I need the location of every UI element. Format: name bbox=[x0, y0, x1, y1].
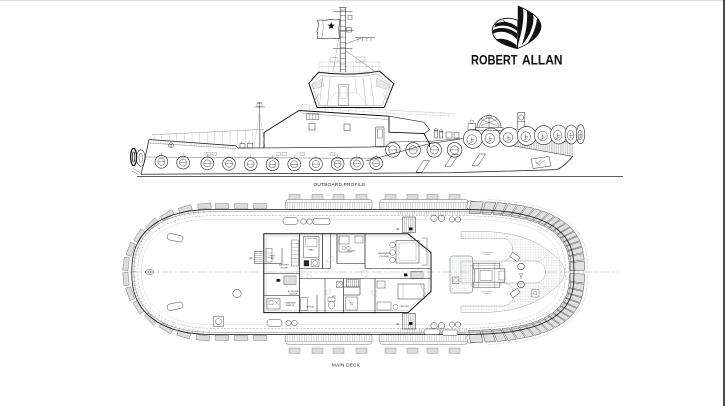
svg-text:ALLAN: ALLAN bbox=[522, 52, 563, 67]
svg-text:GALLEY: GALLEY bbox=[347, 250, 356, 253]
svg-text:HVAC: HVAC bbox=[308, 249, 314, 252]
svg-text:BATTERY: BATTERY bbox=[279, 264, 289, 267]
svg-text:/LOUNGE: /LOUNGE bbox=[379, 256, 389, 258]
svg-text:OUTBOARD PROFILE: OUTBOARD PROFILE bbox=[314, 182, 366, 187]
svg-text:AID: AID bbox=[271, 257, 275, 260]
svg-text:STATION: STATION bbox=[286, 304, 295, 307]
svg-text:UP: UP bbox=[396, 227, 400, 231]
svg-text:ROBERT: ROBERT bbox=[471, 52, 518, 67]
svg-text:WC: WC bbox=[332, 296, 336, 298]
svg-text:UP: UP bbox=[249, 258, 253, 260]
svg-text:MAIN DECK: MAIN DECK bbox=[332, 362, 361, 367]
svg-text:SWITCH: SWITCH bbox=[289, 293, 297, 295]
svg-text:UP: UP bbox=[396, 322, 400, 326]
svg-text:CREW MESS: CREW MESS bbox=[377, 253, 391, 255]
svg-text:ROOM: ROOM bbox=[281, 267, 288, 269]
svg-text:OFFICE: OFFICE bbox=[306, 307, 315, 309]
svg-text:OFFICER: OFFICER bbox=[399, 306, 409, 308]
